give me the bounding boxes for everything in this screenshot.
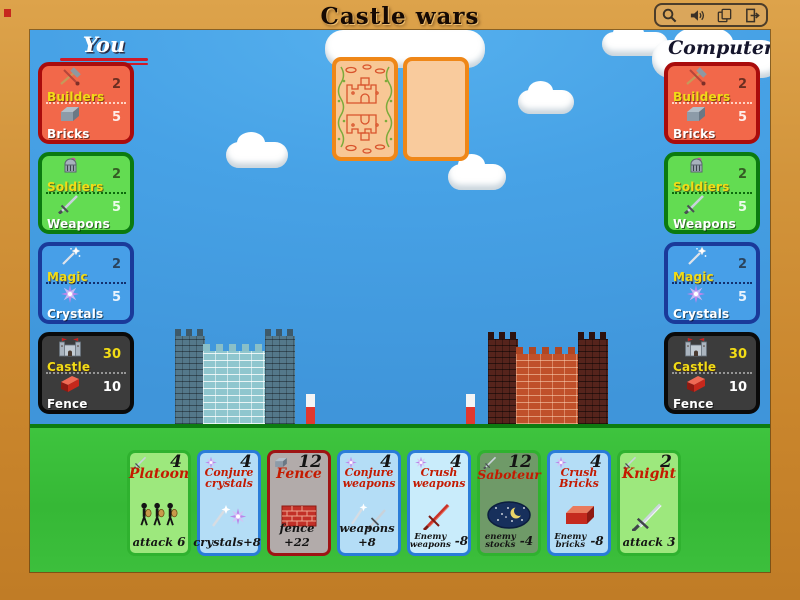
enemy-castle xyxy=(488,332,608,424)
computer-panel-castle-fence: 30 Castle 10 Fence xyxy=(664,332,760,414)
card-title: Fence xyxy=(271,468,327,481)
sword-icon xyxy=(684,194,708,214)
card-title: Saboteur xyxy=(481,468,537,481)
played-card-slot[interactable] xyxy=(403,57,469,161)
computer-crystals-value: 5 xyxy=(738,290,747,305)
hand-card-crush-weapons[interactable]: 4 Crush weapons Enemy weapons -8 xyxy=(407,450,471,556)
fence-brick-icon xyxy=(684,374,708,394)
cards-icon xyxy=(716,7,733,24)
soldier-helmet-icon xyxy=(684,157,708,177)
computer-soldiers-label: Soldiers xyxy=(673,180,730,194)
castle-wall xyxy=(516,354,580,424)
cloud xyxy=(226,142,288,168)
computer-magic-value: 2 xyxy=(738,257,747,272)
you-underline xyxy=(60,58,148,61)
player-you-label: You xyxy=(48,32,160,65)
builder-tools-icon xyxy=(684,67,708,87)
zoom-button[interactable] xyxy=(656,5,684,25)
brick-icon xyxy=(684,104,708,124)
brick-icon xyxy=(58,104,82,124)
player-you-text: You xyxy=(83,32,125,57)
you-bricks-value: 5 xyxy=(112,110,121,125)
castle-tower xyxy=(265,336,295,424)
castle-wall xyxy=(203,351,267,424)
computer-weapons-label: Weapons xyxy=(673,217,736,231)
computer-fence-value: 10 xyxy=(729,380,747,395)
zoom-icon xyxy=(661,7,678,24)
hand-card-conjure-crystals[interactable]: 4 Conjure crystals crystals+8 xyxy=(197,450,261,556)
castle-tower xyxy=(488,339,518,424)
card-effect: weapons +8 xyxy=(340,521,398,549)
you-soldiers-label: Soldiers xyxy=(47,180,104,194)
game-board: You Computer 2 Builders 5 Bricks 2 xyxy=(30,30,770,572)
draw-pile-card[interactable] xyxy=(332,57,398,161)
exit-button[interactable] xyxy=(739,5,767,25)
window-frame: Castle wars You Computer 2 xyxy=(0,0,800,600)
toolbar xyxy=(654,3,768,27)
you-panel-builders-bricks: 2 Builders 5 Bricks xyxy=(38,62,134,144)
you-fence-label: Fence xyxy=(47,397,88,411)
computer-soldiers-value: 2 xyxy=(738,167,747,182)
your-castle xyxy=(175,329,295,424)
card-title: Crush Bricks xyxy=(551,468,607,489)
cloud xyxy=(448,164,506,190)
hand-card-saboteur[interactable]: 12 Saboteur enemy stocks -4 xyxy=(477,450,541,556)
you-magic-value: 2 xyxy=(112,257,121,272)
magic-wand-icon xyxy=(58,247,82,267)
exit-icon xyxy=(744,7,761,24)
castle-icon xyxy=(58,337,82,357)
fence-post-bottom xyxy=(466,407,475,424)
big-sword-art xyxy=(620,498,678,532)
night-moon-art xyxy=(480,498,538,532)
card-back-art xyxy=(336,61,394,157)
card-title: Platoon xyxy=(131,468,187,481)
cards-button[interactable] xyxy=(711,5,739,25)
magic-wand-icon xyxy=(684,247,708,267)
you-weapons-value: 5 xyxy=(112,200,121,215)
fence-brick-icon xyxy=(58,374,82,394)
you-builders-label: Builders xyxy=(47,90,104,104)
card-effect: crystals+8 xyxy=(200,535,258,549)
crystal-icon xyxy=(58,284,82,304)
you-crystals-label: Crystals xyxy=(47,307,103,321)
you-soldiers-value: 2 xyxy=(112,167,121,182)
wand-and-crystal-art xyxy=(200,498,258,532)
card-effect: Enemy weapons -8 xyxy=(410,533,468,549)
soldier-helmet-icon xyxy=(58,157,82,177)
computer-panel-builders-bricks: 2 Builders 5 Bricks xyxy=(664,62,760,144)
your-fence-post xyxy=(306,394,315,424)
computer-panel-magic-crystals: 2 Magic 5 Crystals xyxy=(664,242,760,324)
red-sword-art xyxy=(410,498,468,532)
computer-bricks-label: Bricks xyxy=(673,127,716,141)
card-effect: Enemy bricks -8 xyxy=(550,533,608,549)
card-effect: attack 3 xyxy=(620,535,678,549)
red-brick-art xyxy=(550,498,608,532)
you-castle-value: 30 xyxy=(103,347,121,362)
you-crystals-value: 5 xyxy=(112,290,121,305)
card-title: Conjure crystals xyxy=(201,468,257,489)
you-builders-value: 2 xyxy=(112,77,121,92)
crystal-icon xyxy=(684,284,708,304)
you-weapons-label: Weapons xyxy=(47,217,110,231)
computer-bricks-value: 5 xyxy=(738,110,747,125)
card-title: Crush weapons xyxy=(411,468,467,489)
hand-card-conjure-weapons[interactable]: 4 Conjure weapons weapons +8 xyxy=(337,450,401,556)
fence-post-top xyxy=(306,394,315,407)
hand-card-knight[interactable]: 2 Knight attack 3 xyxy=(617,450,681,556)
three-soldiers-art xyxy=(130,498,188,532)
castle-icon xyxy=(684,337,708,357)
player-computer-text: Computer xyxy=(668,37,770,59)
fence-post-top xyxy=(466,394,475,407)
card-title: Knight xyxy=(621,468,677,481)
card-effect: enemy stocks -4 xyxy=(480,533,538,549)
computer-crystals-label: Crystals xyxy=(673,307,729,321)
fence-post-bottom xyxy=(306,407,315,424)
card-effect: fence +22 xyxy=(270,521,328,549)
castle-tower xyxy=(578,339,608,424)
computer-builders-label: Builders xyxy=(673,90,730,104)
card-title: Conjure weapons xyxy=(341,468,397,489)
volume-button[interactable] xyxy=(684,5,712,25)
hand-card-crush-bricks[interactable]: 4 Crush Bricks Enemy bricks -8 xyxy=(547,450,611,556)
hand-card-fence[interactable]: 12 Fence fence +22 xyxy=(267,450,331,556)
sword-icon xyxy=(58,194,82,214)
you-panel-castle-fence: 30 Castle 10 Fence xyxy=(38,332,134,414)
you-panel-soldiers-weapons: 2 Soldiers 5 Weapons xyxy=(38,152,134,234)
player-computer-label: Computer xyxy=(656,37,770,59)
hand-card-platoon[interactable]: 4 Platoon attack 6 xyxy=(127,450,191,556)
card-effect: attack 6 xyxy=(130,535,188,549)
you-bricks-label: Bricks xyxy=(47,127,90,141)
you-panel-magic-crystals: 2 Magic 5 Crystals xyxy=(38,242,134,324)
builder-tools-icon xyxy=(58,67,82,87)
computer-magic-label: Magic xyxy=(673,270,714,284)
you-castle-label: Castle xyxy=(47,360,90,374)
computer-castle-value: 30 xyxy=(729,347,747,362)
computer-builders-value: 2 xyxy=(738,77,747,92)
you-magic-label: Magic xyxy=(47,270,88,284)
computer-fence-label: Fence xyxy=(673,397,714,411)
computer-panel-soldiers-weapons: 2 Soldiers 5 Weapons xyxy=(664,152,760,234)
enemy-fence-post xyxy=(466,394,475,424)
you-fence-value: 10 xyxy=(103,380,121,395)
castle-tower xyxy=(175,336,205,424)
cloud xyxy=(518,90,574,114)
volume-icon xyxy=(689,7,706,24)
computer-weapons-value: 5 xyxy=(738,200,747,215)
computer-castle-label: Castle xyxy=(673,360,716,374)
